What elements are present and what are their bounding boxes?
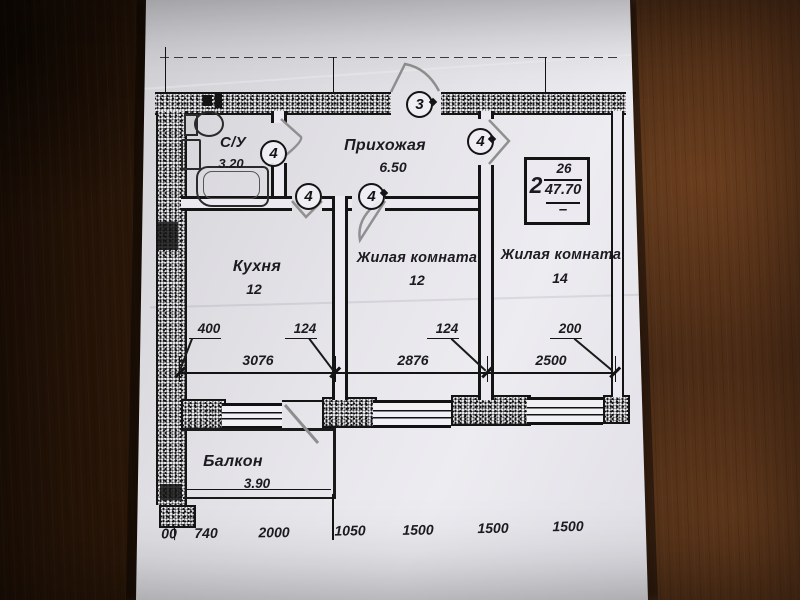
balcony-door-leaf [282, 403, 322, 447]
axis-tick-right [545, 57, 546, 92]
kitchen-door-tag: 4 [295, 183, 322, 210]
stamp-fraction-line [544, 179, 582, 181]
axis-tick-left [165, 47, 166, 92]
living-room-2-label: Жилая комната [491, 247, 631, 263]
living-room-1-door-tag: 4 [358, 183, 385, 210]
balcony-door-threshold [282, 400, 322, 402]
bathroom-label: С/У [203, 134, 263, 151]
bottom-wall-corner [181, 399, 226, 431]
living-room-1-window [373, 400, 451, 428]
bottom-dim-3: 1050 [328, 522, 372, 538]
top-wall-right [441, 92, 626, 115]
bottom-dim-2: 2000 [252, 524, 296, 540]
bottom-dim-4: 1500 [396, 521, 440, 537]
leader-underline [189, 338, 221, 339]
axis-line-horizontal [160, 57, 622, 58]
living-room-2-area: 14 [490, 270, 630, 286]
hallway-area: 6.50 [343, 159, 443, 175]
vent-shaft-block [203, 95, 212, 106]
span-living-2: 2500 [501, 352, 601, 368]
stamp-total-area: 47.70 [541, 182, 585, 198]
vent-shaft-block [158, 222, 178, 250]
kitchen-label: Кухня [207, 258, 307, 276]
hallway-label: Прихожая [335, 137, 435, 155]
stamp-bottom-mark: – [549, 201, 577, 218]
floor-plan-drawing: 3 4 4 4 4 С/У 3.20 Прихожая 6.50 Кухня 1… [0, 0, 800, 600]
leader-label-124b: 124 [407, 321, 487, 336]
entrance-door-swing [387, 60, 443, 94]
balcony-label: Балкон [183, 453, 283, 471]
span-living-1: 2876 [363, 352, 463, 368]
dimension-line [180, 372, 616, 374]
stamp-apartment-number: 26 [544, 161, 584, 176]
bathroom-area: 3.20 [201, 156, 261, 171]
kitchen-area: 12 [204, 281, 304, 297]
bottom-dim-tick [174, 527, 175, 540]
bottom-dimension-row: 00 740 2000 1050 1500 1500 1500 [150, 516, 630, 540]
entrance-door-tag: 3 [406, 91, 433, 118]
living-room-1-area: 12 [347, 272, 487, 288]
axis-tick-mid [333, 57, 334, 92]
vent-shaft-block [215, 92, 222, 108]
bottom-wall-pier-1 [322, 397, 377, 428]
hall-bottom-wall-3 [385, 196, 487, 211]
bottom-dim-5: 1500 [471, 520, 515, 536]
leader-label-200: 200 [530, 321, 610, 336]
span-kitchen: 3076 [208, 352, 308, 368]
vent-shaft-block [160, 484, 182, 500]
living-room-2-window [527, 397, 603, 425]
bathroom-door-tag: 4 [260, 140, 287, 167]
leader-label-124a: 124 [265, 321, 345, 336]
bathtub-inner [203, 171, 260, 199]
bottom-wall-pier-3 [603, 395, 630, 424]
bottom-dim-0: 00 [158, 525, 180, 540]
leader-underline [285, 338, 317, 339]
leader-line [309, 338, 334, 371]
apartment-stamp: 2 26 47.70 – [524, 157, 590, 225]
leader-label-400: 400 [169, 321, 249, 336]
bottom-dim-6: 1500 [546, 518, 590, 534]
living-room-1-label: Жилая комната [347, 250, 487, 266]
bottom-dim-1: 740 [189, 525, 223, 541]
balcony-area: 3.90 [207, 476, 307, 491]
kitchen-window [222, 403, 282, 429]
sink [181, 139, 201, 170]
